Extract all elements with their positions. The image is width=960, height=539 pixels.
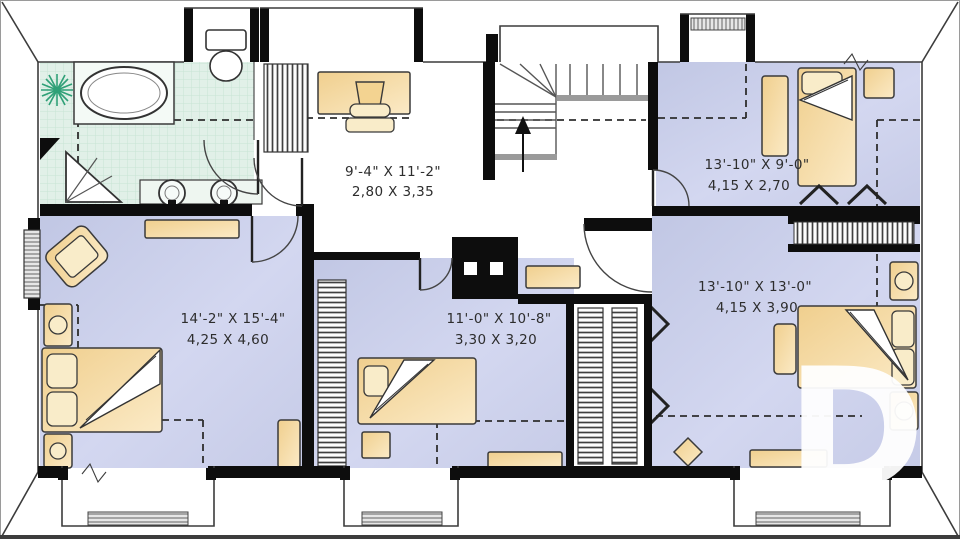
shelf-icon bbox=[526, 266, 580, 288]
bedroom-right-door bbox=[584, 218, 652, 292]
room-dimension-imperial: 9'-4" X 11'-2" bbox=[345, 164, 441, 180]
chimney-icon bbox=[452, 237, 518, 299]
office bbox=[264, 64, 410, 152]
lamp-icon bbox=[895, 272, 913, 290]
nightstand-icon bbox=[44, 304, 72, 346]
bed-icon bbox=[42, 348, 162, 432]
closet-shelf-icon bbox=[794, 222, 914, 244]
lamp-icon bbox=[49, 316, 67, 334]
nightstand-icon bbox=[44, 434, 72, 468]
room-dimension-imperial: 14'-2" X 15'-4" bbox=[181, 311, 286, 327]
room-dimension-imperial: 11'-0" X 10'-8" bbox=[447, 311, 552, 327]
lamp-icon bbox=[50, 443, 66, 459]
closet-rod-icon bbox=[578, 308, 603, 464]
room-dimension-metric: 4,15 X 2,70 bbox=[708, 178, 790, 194]
room-dimension-imperial: 13'-10" X 13'-0" bbox=[698, 279, 812, 295]
toilet-icon bbox=[206, 30, 246, 81]
image-border-bottom bbox=[0, 535, 960, 539]
dresser-icon bbox=[278, 420, 300, 468]
dresser-icon bbox=[145, 220, 239, 238]
room-dimension-metric: 2,80 X 3,35 bbox=[352, 184, 434, 200]
room-label-office: 9'-4" X 11'-2" 2,80 X 3,35 bbox=[345, 164, 441, 200]
closet-rod-icon bbox=[612, 308, 637, 464]
dresser-icon bbox=[488, 452, 562, 468]
dresser-icon bbox=[762, 76, 788, 156]
stairs-up-arrow-icon bbox=[515, 116, 531, 172]
nightstand-icon bbox=[864, 68, 894, 98]
room-dimension-metric: 4,15 X 3,90 bbox=[716, 300, 798, 316]
watermark-logo-d: D bbox=[786, 332, 925, 528]
floor-plan: 9'-4" X 11'-2" 2,80 X 3,35 13'-10" X 9'-… bbox=[0, 0, 960, 539]
vanity-double-sink bbox=[140, 180, 262, 206]
desk-icon bbox=[318, 72, 410, 132]
closet-rod-icon bbox=[318, 280, 346, 466]
room-dimension-metric: 4,25 X 4,60 bbox=[187, 332, 269, 348]
window-icon bbox=[691, 18, 745, 30]
bed-icon bbox=[358, 358, 476, 424]
room-dimension-imperial: 13'-10" X 9'-0" bbox=[705, 157, 810, 173]
bathtub-icon bbox=[74, 62, 174, 124]
room-dimension-metric: 3,30 X 3,20 bbox=[455, 332, 537, 348]
window-icon bbox=[24, 230, 40, 298]
nightstand-icon bbox=[890, 262, 918, 300]
window-icon bbox=[88, 512, 188, 525]
wardrobe-closet-icon bbox=[264, 64, 308, 152]
desk-chair-icon bbox=[356, 82, 384, 106]
window-icon bbox=[362, 512, 442, 525]
nightstand-icon bbox=[362, 432, 390, 458]
staircase-up bbox=[495, 64, 648, 172]
